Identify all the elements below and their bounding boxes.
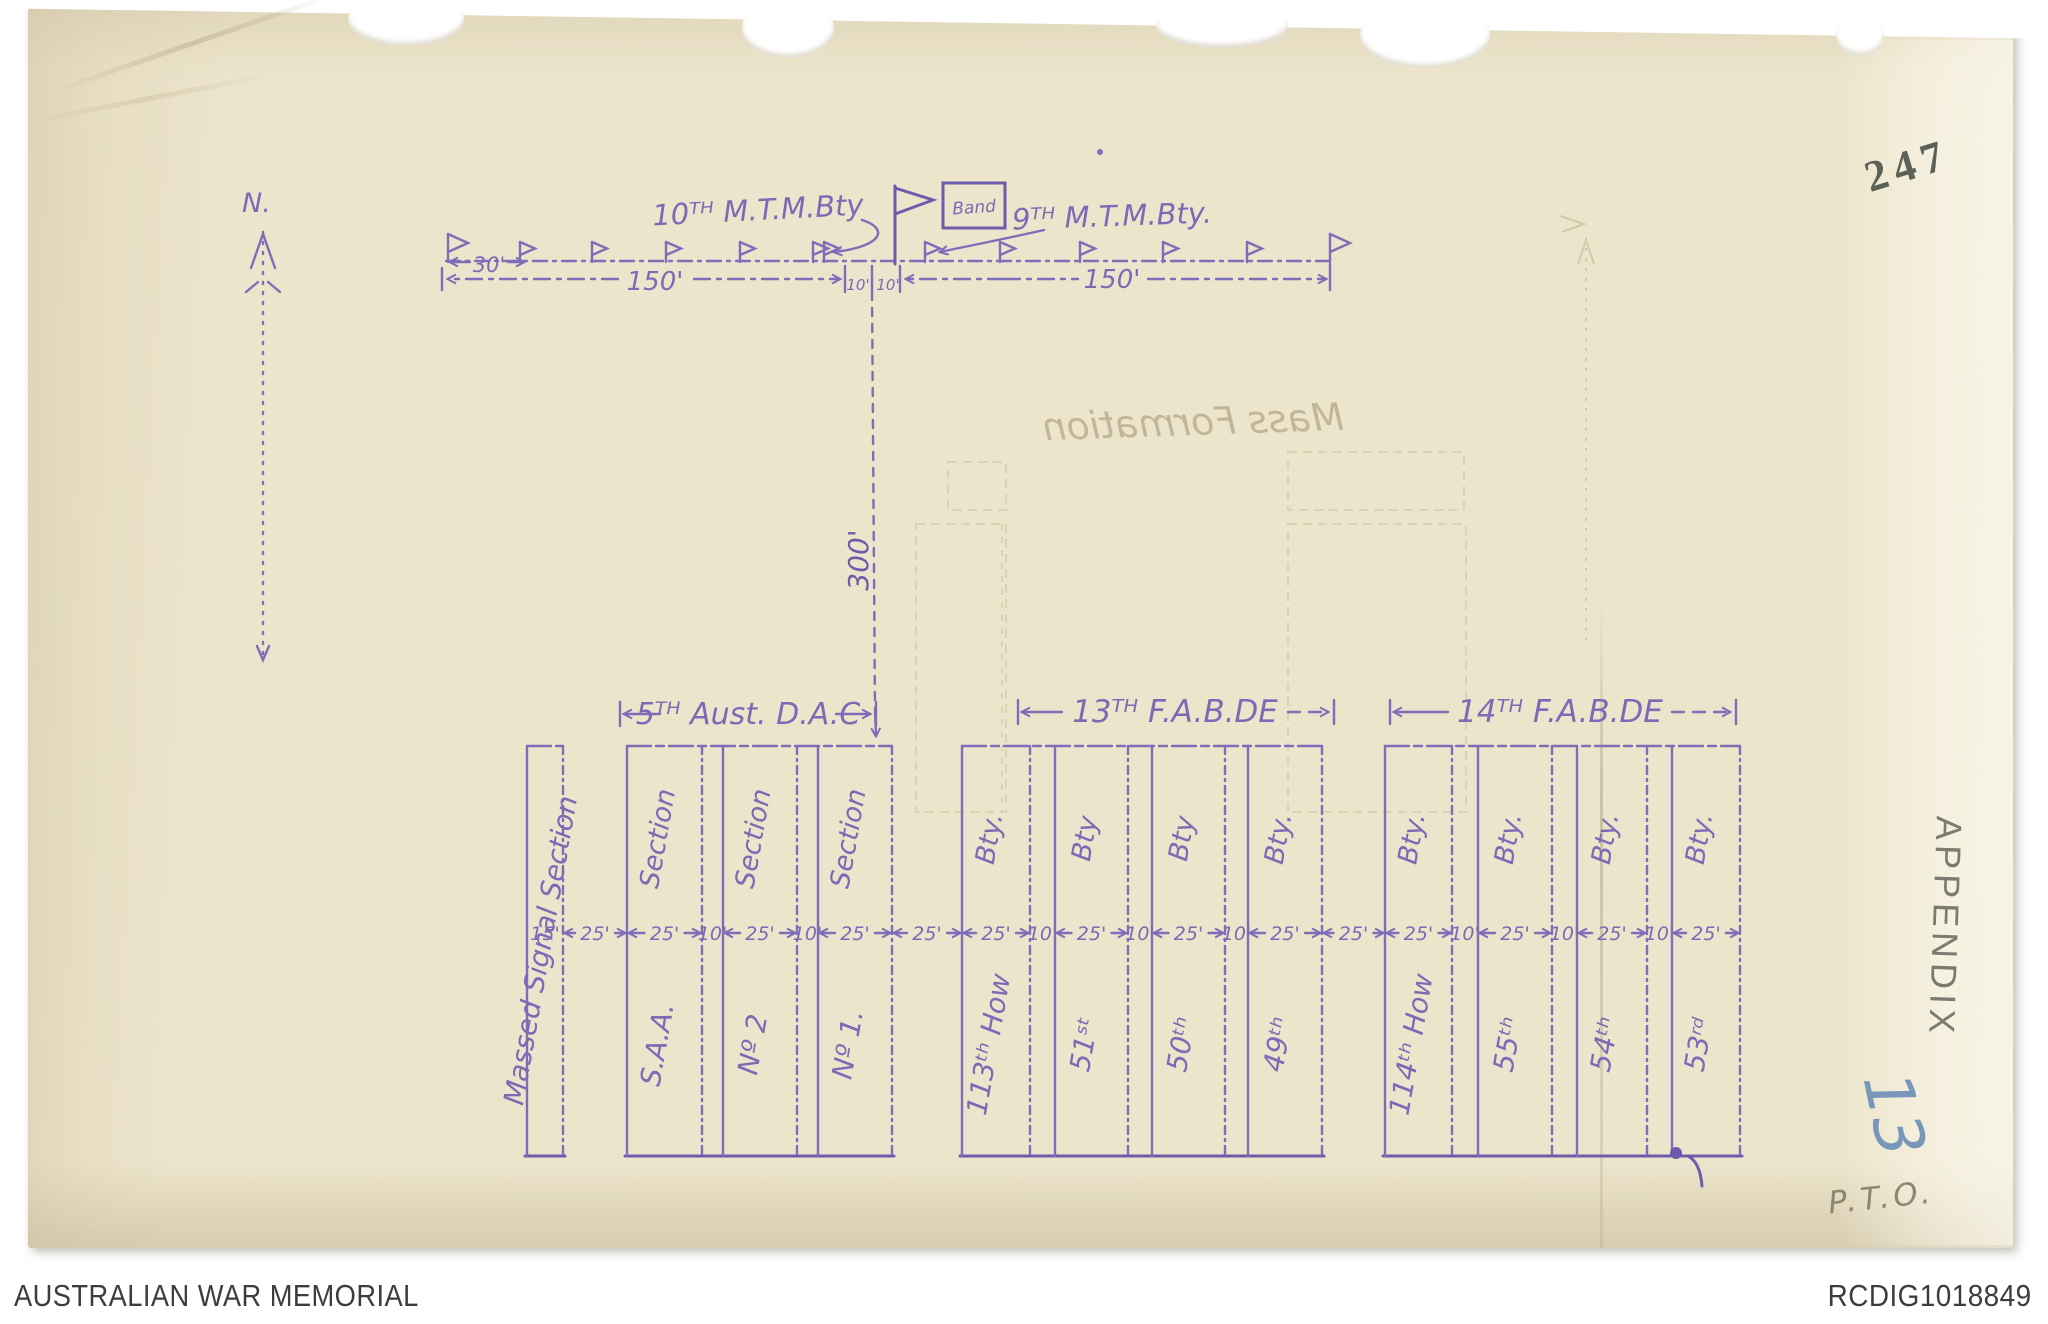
column-top-label: Bty (1066, 813, 1105, 864)
column-top-label: Bty. (970, 810, 1009, 866)
flag-pennant-icon (666, 242, 681, 255)
width-measurement: 25' (1691, 923, 1720, 945)
column-bottom-label: 49ᵗʰ (1257, 1014, 1299, 1074)
flag-pennant-icon (592, 242, 607, 255)
column-bottom-label: 50ᵗʰ (1160, 1014, 1202, 1074)
column-bottom-label: 54ᵗʰ (1584, 1014, 1626, 1074)
width-measurement: 10' (1645, 923, 1674, 945)
width-measurement: 25' (1174, 923, 1203, 945)
column-top-label: Bty (1163, 813, 1202, 864)
width-measurement: 25' (912, 923, 941, 945)
bleedthrough-shapes (916, 452, 1466, 812)
column-top-label: Section (634, 786, 682, 890)
scanned-document-page: Mass Formation N. (0, 0, 2048, 1324)
group-label-14th-fab: 14ᵀᴴ F.A.B.DE (1457, 694, 1663, 730)
north-arrow: N. (242, 188, 280, 660)
measure-150ft-left: 150' (627, 267, 684, 297)
width-measurement: 10' (1028, 923, 1057, 945)
width-measurement: 25' (1339, 923, 1368, 945)
ink-blot (1670, 1147, 1682, 1159)
column-bottom-label: Nº 2 (731, 1012, 774, 1078)
band-box: Band (943, 183, 1005, 228)
column-bottom-label: S.A.A. (634, 1000, 681, 1088)
formation-diagram: N. Band 10ᵀᴴ M.T.M.Bty 9ᵀᴴ M.T.M (0, 0, 2048, 1324)
group-header-14fab: 14ᵀᴴ F.A.B.DE (1390, 694, 1736, 730)
measure-150ft-right: 150' (1084, 265, 1141, 295)
band-label: Band (952, 196, 997, 219)
width-measurement: 25' (745, 923, 774, 945)
column-bottom-label: 53ʳᵈ (1678, 1015, 1720, 1074)
width-measurement: 25' (840, 923, 869, 945)
label-10th-mtm-bty: 10ᵀᴴ M.T.M.Bty (651, 187, 865, 232)
width-measurement: 25' (580, 923, 609, 945)
flag-markers (448, 234, 1350, 262)
front-line: Band 10ᵀᴴ M.T.M.Bty 9ᵀᴴ M.T.M.Bty. (446, 183, 1350, 264)
flag-pennant-icon (740, 242, 755, 255)
column-label: Massed Signal Section (497, 793, 584, 1107)
end-flag-pennant-icon (448, 234, 468, 252)
depth-line: 300' (842, 292, 876, 736)
ink-run (1688, 1156, 1702, 1186)
column-top-label: Bty. (1586, 810, 1625, 866)
column-top-label: Bty. (1489, 810, 1528, 866)
depth-measurement: 300' (842, 529, 875, 590)
column-top-label: Section (730, 786, 778, 890)
flag-pennant-icon (1080, 242, 1095, 255)
width-measurement: 10' (1450, 923, 1479, 945)
bleedthrough-north-arrow (1560, 216, 1594, 640)
front-dimension-line: 30' 150' 10' 10' 150' (442, 253, 1330, 297)
centre-flag-icon (895, 186, 933, 264)
column-bottom-label: 55ᵗʰ (1487, 1014, 1529, 1074)
group-header-13fab: 13ᵀᴴ F.A.B.DE (1018, 694, 1334, 730)
column-bottom-label: 113ᵗʰ How (960, 971, 1017, 1118)
footer-institution: AUSTRALIAN WAR MEMORIAL (14, 1278, 419, 1314)
width-measurement: 15' (530, 923, 559, 945)
width-measurement: 10' (793, 923, 822, 945)
flag-pennant-icon (1247, 242, 1262, 255)
measure-30ft: 30' (473, 253, 506, 277)
flag-pennant-icon (520, 242, 535, 255)
flag-pennant-icon (925, 242, 940, 255)
width-measurement: 25' (1500, 923, 1529, 945)
flag-pennant-icon (1163, 242, 1178, 255)
width-measurement: 25' (1270, 923, 1299, 945)
width-measurement: 10' (1222, 923, 1251, 945)
width-measurement: 10' (1550, 923, 1579, 945)
column-top-label: Bty. (1680, 810, 1719, 866)
measure-10ft-right: 10' (876, 276, 899, 294)
width-measurement: 25' (981, 923, 1010, 945)
width-measurement: 25' (1597, 923, 1626, 945)
flag-pennant-icon (1000, 242, 1015, 255)
group-label-13th-fab: 13ᵀᴴ F.A.B.DE (1072, 694, 1278, 730)
column-top-label: Section (825, 786, 873, 890)
column-bottom-label: 51ˢᵗ (1063, 1015, 1105, 1074)
group-header-dac: 5ᵀᴴ Aust. D.A.C (620, 697, 876, 732)
column-top-label: Bty. (1392, 810, 1431, 866)
column-bottom-label: 114ᵗʰ How (1382, 971, 1439, 1118)
width-measurement: 25' (650, 923, 679, 945)
ink-speck (1097, 149, 1103, 155)
group-label-5th-dac: 5ᵀᴴ Aust. D.A.C (636, 697, 861, 732)
column-bottom-label: Nº 1. (825, 1007, 870, 1081)
appendix-stamp: APPENDIX (1920, 815, 1970, 1038)
north-label: N. (242, 188, 271, 219)
width-measurement: 10' (1125, 923, 1154, 945)
width-measurement: 10' (698, 923, 727, 945)
footer-record-id: RCDIG1018849 (1828, 1278, 2032, 1314)
measure-10ft-left: 10' (846, 276, 869, 294)
width-measurement: 25' (1077, 923, 1106, 945)
column-top-label: Bty. (1259, 810, 1298, 866)
width-measurement: 25' (1404, 923, 1433, 945)
end-flag-pennant-icon (1330, 234, 1350, 252)
unit-columns: Massed Signal SectionSectionS.A.A.Sectio… (497, 746, 1742, 1156)
